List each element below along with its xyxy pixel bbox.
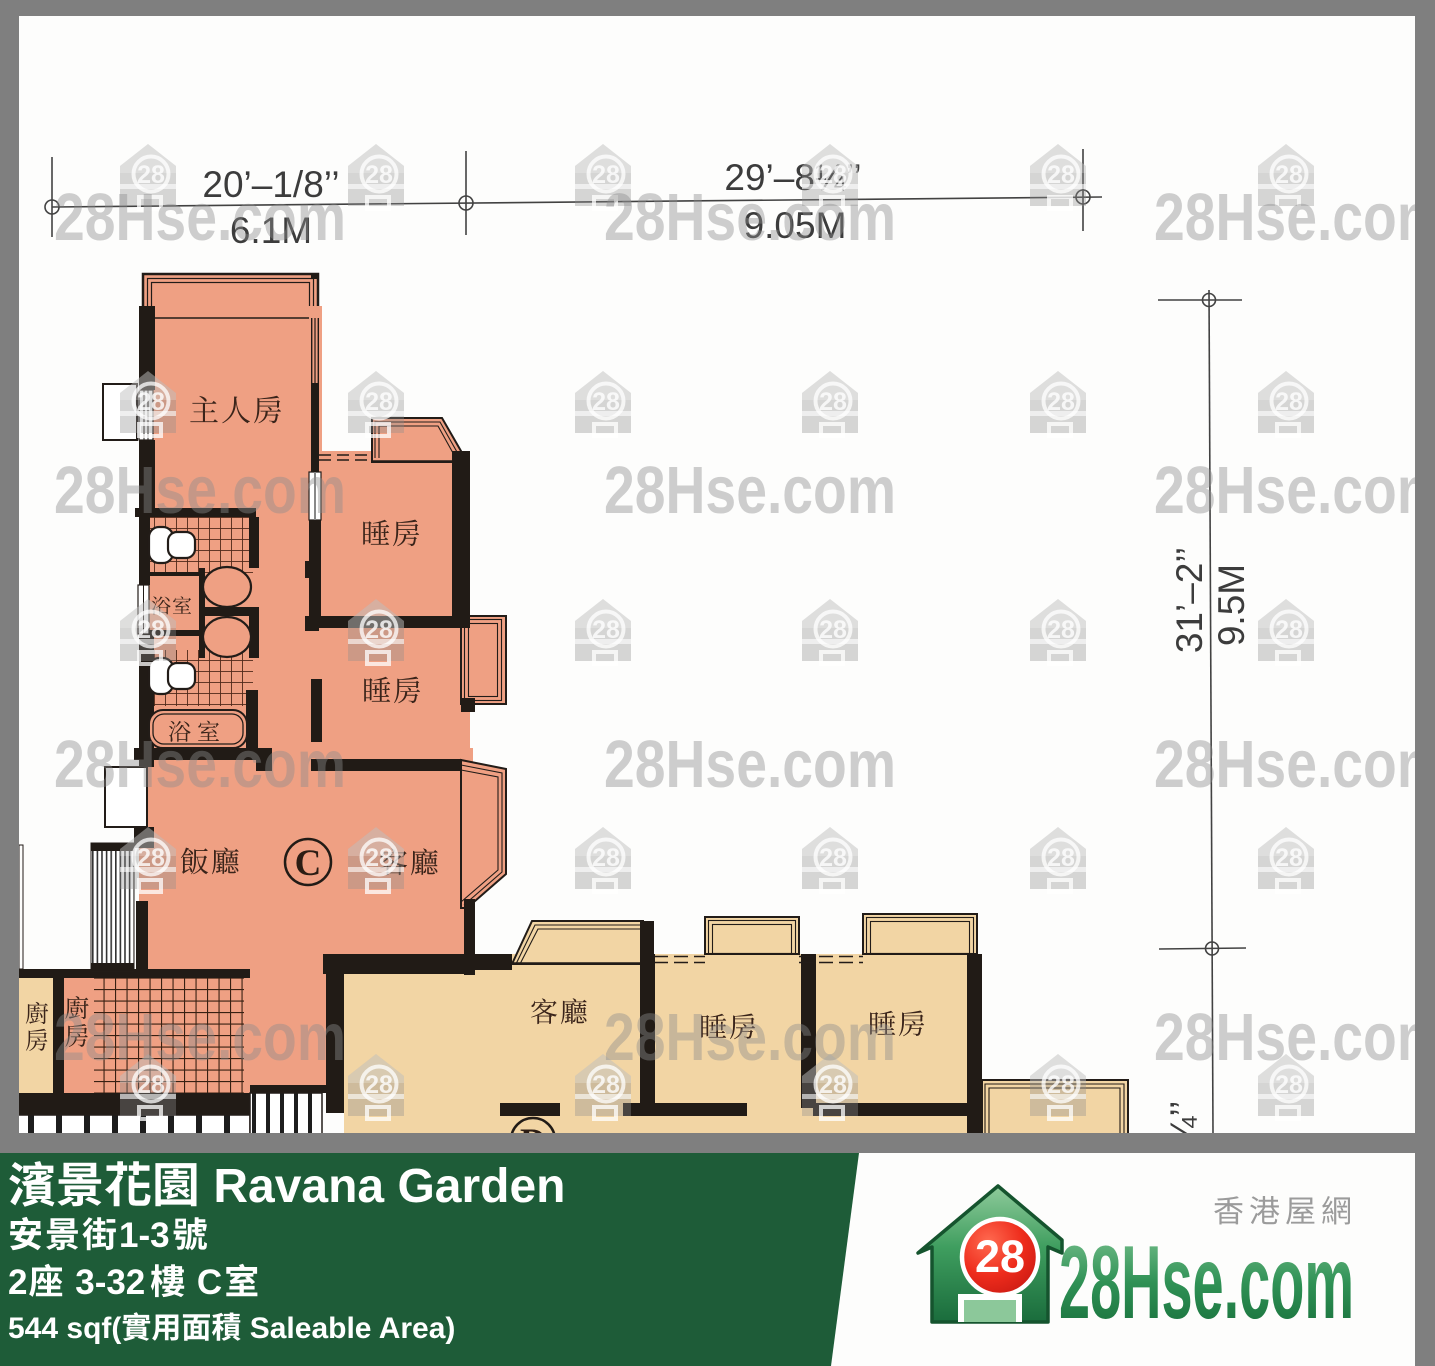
svg-text:31’–2’’: 31’–2’’ — [1169, 547, 1210, 653]
svg-text:9.5M: 9.5M — [1211, 564, 1252, 646]
svg-text:2: 2 — [8, 1263, 27, 1302]
svg-text:28: 28 — [975, 1231, 1025, 1282]
svg-text:Saleable Area): Saleable Area) — [241, 1312, 455, 1345]
svg-text:1-3: 1-3 — [119, 1216, 170, 1255]
svg-text:C: C — [295, 843, 322, 884]
svg-text:C: C — [187, 1263, 222, 1302]
svg-text:Ravana Garden: Ravana Garden — [200, 1160, 565, 1213]
svg-text:3-32: 3-32 — [66, 1263, 146, 1302]
svg-text:544 sqf(: 544 sqf( — [8, 1312, 121, 1345]
svg-text:28Hse.com: 28Hse.com — [1059, 1225, 1354, 1341]
